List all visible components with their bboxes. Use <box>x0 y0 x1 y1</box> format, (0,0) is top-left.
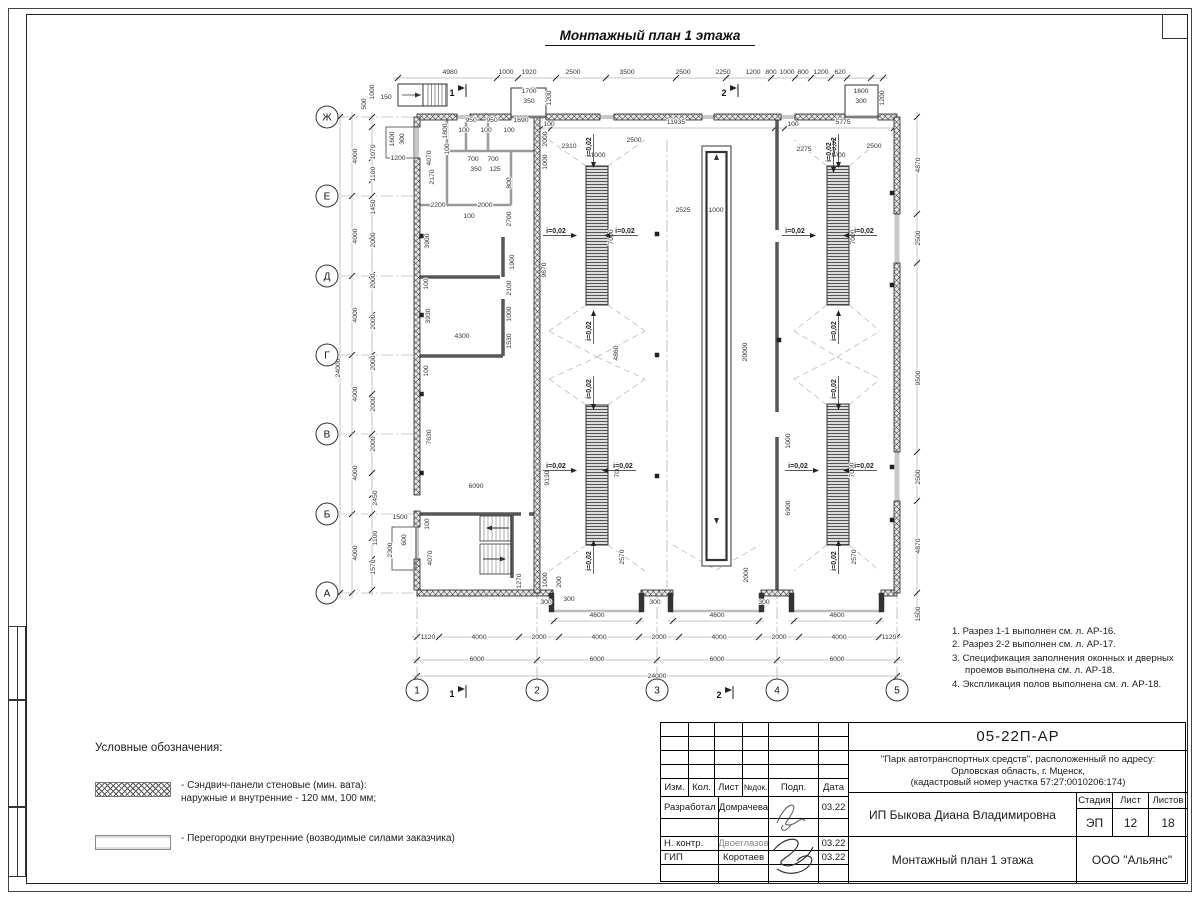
dim-label: 5775 <box>835 119 850 126</box>
date-developer: 03.22 <box>819 797 849 819</box>
col-izm: Изм. <box>661 779 689 797</box>
note-item: 1. Разрез 1-1 выполнен см. л. АР-16. <box>952 626 1194 638</box>
svg-text:i=0,02: i=0,02 <box>854 463 874 470</box>
stage-value: ЭП <box>1077 809 1113 837</box>
axis-bubble: Г <box>316 344 338 366</box>
legend-item: - Перегородки внутренние (возводимые сил… <box>95 833 515 846</box>
axis-bubble: Е <box>316 185 338 207</box>
role-developer: Разработал <box>661 797 719 819</box>
sheets-label: Листов <box>1149 793 1187 809</box>
project-description: "Парк автотранспортных средств", располо… <box>849 751 1187 793</box>
svg-text:i=0,02: i=0,02 <box>586 321 593 341</box>
note-item: 3. Спецификация заполнения оконных и две… <box>952 653 1194 678</box>
drawing-sheet: 4980100019202500350025002250120080010008… <box>0 0 1200 900</box>
svg-text:5: 5 <box>894 686 900 697</box>
doc-number: 05-22П-АР <box>849 723 1187 751</box>
dim-label: 1800 <box>442 123 449 138</box>
slope-label: i=0,02 <box>785 463 819 473</box>
dim-label: 2000 <box>743 567 750 582</box>
section-mark: 1 <box>449 685 466 699</box>
svg-text:1: 1 <box>449 689 454 699</box>
dim-label: 1000 <box>708 207 723 214</box>
client-name: ИП Быкова Диана Владимировна <box>849 793 1077 837</box>
dim-label: 1900 <box>509 254 516 269</box>
dim-label: 100 <box>444 143 451 155</box>
dim-label: 2000 <box>370 273 377 288</box>
dim-label: 125 <box>489 166 501 173</box>
dim-label: 100 <box>543 121 555 128</box>
dim-label: 300 <box>399 133 406 145</box>
dim-label: 1120 <box>421 634 436 641</box>
dim-label: 4300 <box>454 333 469 340</box>
dim-label: 3900 <box>424 233 431 248</box>
dim-label: 2170 <box>429 169 436 184</box>
name-gip: Коротаев <box>719 851 769 865</box>
dim-label: 100 <box>423 278 430 290</box>
svg-text:i=0,02: i=0,02 <box>546 228 566 235</box>
dim-label: 6090 <box>468 483 483 490</box>
slope-label: i=0,02 <box>782 228 816 238</box>
legend-item-text: - Сэндвич-панели стеновые (мин. вата): н… <box>181 780 515 805</box>
dim-label: 6000 <box>829 656 844 663</box>
dim-label: 1120 <box>882 634 897 641</box>
legend-item-text: - Перегородки внутренние (возводимые сил… <box>181 833 515 846</box>
dim-label: 950 <box>486 117 498 124</box>
dim-label: 1000 <box>369 84 376 99</box>
title-block: 05-22П-АР "Парк автотранспортных средств… <box>660 722 1186 882</box>
dim-label: 100 <box>503 127 515 134</box>
dim-label: 600 <box>401 534 408 546</box>
dim-label: 2000 <box>477 202 492 209</box>
dim-label: 700 <box>487 156 499 163</box>
dim-label: 4600 <box>709 612 724 619</box>
dim-label: 300 <box>540 599 552 606</box>
dim-label: 2000 <box>651 634 666 641</box>
sandwich-panel-swatch <box>95 782 171 797</box>
note-item: 4. Экспликация полов выполнена см. л. АР… <box>952 679 1194 691</box>
dim-label: 1200 <box>879 90 886 105</box>
svg-text:Ж: Ж <box>322 113 332 124</box>
col-podp: Подп. <box>769 779 819 797</box>
partition-swatch <box>95 835 171 850</box>
dim-label: 1500 <box>915 606 922 621</box>
dim-label: 100 <box>424 518 431 530</box>
dim-label: 3930 <box>425 308 432 323</box>
dim-label: 4000 <box>591 634 606 641</box>
dim-label: 6900 <box>785 500 792 515</box>
svg-text:i=0,02: i=0,02 <box>586 379 593 399</box>
dim-label: 1000 <box>542 572 549 587</box>
col-list: Лист <box>715 779 743 797</box>
svg-text:Б: Б <box>324 510 331 521</box>
axis-bubble: В <box>316 423 338 445</box>
col-ndok: №док. <box>743 779 769 797</box>
svg-text:1: 1 <box>449 88 454 98</box>
svg-text:Д: Д <box>324 272 331 283</box>
svg-text:1: 1 <box>414 686 420 697</box>
dim-label: 4870 <box>915 157 922 172</box>
svg-text:i=0,02: i=0,02 <box>826 142 833 162</box>
dim-label: 1200 <box>813 69 828 76</box>
dim-label: 2700 <box>506 211 513 226</box>
axis-bubble: 3 <box>646 679 668 701</box>
date-gip: 03.22 <box>819 851 849 865</box>
note-item: 2. Разрез 2-2 выполнен см. л. АР-17. <box>952 639 1194 651</box>
dim-label: 4600 <box>589 612 604 619</box>
dim-label: 950 <box>465 117 477 124</box>
dim-label: 4070 <box>427 550 434 565</box>
slope-label: i=0,02 <box>586 134 596 168</box>
sheet-label: Лист <box>1113 793 1149 809</box>
dim-label: 6000 <box>469 656 484 663</box>
dim-label: 2570 <box>619 549 626 564</box>
dim-label: 1000 <box>542 154 549 169</box>
dim-label: 100 <box>423 365 430 377</box>
dim-label: 300 <box>563 596 575 603</box>
axis-bubble: А <box>316 582 338 604</box>
dim-label: 2450 <box>372 490 379 505</box>
svg-text:i=0,02: i=0,02 <box>615 228 635 235</box>
dim-label: 4000 <box>352 545 359 560</box>
dim-label: 4070 <box>426 150 433 165</box>
date-ncontrol: 03.22 <box>819 837 849 851</box>
dim-label: 1200 <box>390 155 405 162</box>
dim-label: 1600 <box>389 131 396 146</box>
slope-label: i=0,02 <box>543 228 577 238</box>
svg-text:А: А <box>324 589 331 600</box>
svg-text:i=0,02: i=0,02 <box>613 463 633 470</box>
axis-bubble: Б <box>316 503 338 525</box>
dim-label: 4000 <box>352 228 359 243</box>
dim-label: 1270 <box>516 573 523 588</box>
dim-label: 1600 <box>853 88 868 95</box>
dim-label: 9130 <box>544 470 551 485</box>
role-gip: ГИП <box>661 851 719 865</box>
svg-text:В: В <box>324 430 331 441</box>
svg-text:2: 2 <box>721 88 726 98</box>
section-mark: 2 <box>716 686 733 700</box>
sheets-total: 18 <box>1149 809 1187 837</box>
svg-text:Г: Г <box>324 351 330 362</box>
dim-label: 800 <box>506 177 513 189</box>
dim-label: 1000 <box>785 433 792 448</box>
dim-label: 2250 <box>715 69 730 76</box>
dim-label: 6000 <box>709 656 724 663</box>
col-kol: Кол. <box>689 779 715 797</box>
stage-label: Стадия <box>1077 793 1113 809</box>
dim-label: 11935 <box>667 119 686 126</box>
dim-label: 2000 <box>370 355 377 370</box>
drawing-title: Монтажный план 1 этажа <box>849 837 1077 883</box>
dim-label: 4980 <box>442 69 457 76</box>
dim-label: 4000 <box>831 634 846 641</box>
name-developer: Домрачева <box>719 797 769 819</box>
name-ncontrol: Двоеглазов <box>719 837 769 851</box>
section-mark: 1 <box>449 84 466 98</box>
dim-label: 4000 <box>352 307 359 322</box>
slope-label: i=0,02 <box>586 310 596 344</box>
svg-text:i=0,02: i=0,02 <box>788 463 808 470</box>
dim-label: 1530 <box>506 333 513 348</box>
dim-label: 1100 <box>372 530 379 545</box>
legend-heading: Условные обозначения: <box>95 742 515 754</box>
dim-label: 1690 <box>513 117 528 124</box>
col-data: Дата <box>819 779 849 797</box>
axis-bubble: Ж <box>316 106 338 128</box>
dim-label: 1700 <box>521 88 536 95</box>
dim-label: 1450 <box>370 199 377 214</box>
svg-text:i=0,02: i=0,02 <box>546 463 566 470</box>
dim-label: 100 <box>787 121 799 128</box>
dim-label: 2100 <box>506 280 513 295</box>
dim-label: 6000 <box>589 656 604 663</box>
dim-label: 1100 <box>370 166 377 181</box>
svg-text:i=0,02: i=0,02 <box>831 379 838 399</box>
dim-label: 800 <box>765 69 777 76</box>
notes-list: 1. Разрез 1-1 выполнен см. л. АР-16.2. Р… <box>952 626 1194 692</box>
dim-label: 2000 <box>370 314 377 329</box>
dim-label: 2500 <box>675 69 690 76</box>
sheet-number: 12 <box>1113 809 1149 837</box>
dim-label: 4000 <box>352 465 359 480</box>
axis-bubble: 5 <box>886 679 908 701</box>
dim-label: 4000 <box>711 634 726 641</box>
dim-label: 100 <box>463 213 475 220</box>
svg-text:2: 2 <box>534 686 540 697</box>
dim-label: 100 <box>480 127 492 134</box>
dim-label: 1200 <box>546 90 553 105</box>
dim-label: 300 <box>649 599 661 606</box>
dim-label: 1920 <box>521 69 536 76</box>
dim-label: 2275 <box>796 146 811 153</box>
dim-label: 2000 <box>542 131 549 146</box>
dim-label: 20000 <box>742 342 749 361</box>
dim-label: 7630 <box>426 429 433 444</box>
legend-item: - Сэндвич-панели стеновые (мин. вата): н… <box>95 780 515 805</box>
dim-label: 2500 <box>565 69 580 76</box>
dim-label: 2300 <box>387 542 394 557</box>
svg-text:2: 2 <box>716 690 721 700</box>
dim-label: 2000 <box>370 396 377 411</box>
company-name: ООО "Альянс" <box>1077 837 1187 883</box>
dim-label: 4000 <box>471 634 486 641</box>
dim-label: 100 <box>458 127 470 134</box>
svg-text:i=0,02: i=0,02 <box>785 228 805 235</box>
dim-label: 300 <box>855 98 867 105</box>
dim-label: 1070 <box>370 144 377 159</box>
svg-text:i=0,02: i=0,02 <box>586 551 593 571</box>
dim-label: 800 <box>797 69 809 76</box>
dim-label: 2200 <box>430 202 445 209</box>
svg-text:Е: Е <box>324 192 331 203</box>
plan-title: Монтажный план 1 этажа <box>545 28 755 46</box>
dim-label: 620 <box>834 69 846 76</box>
dim-label: 9500 <box>915 370 922 385</box>
dim-label: 2525 <box>675 207 690 214</box>
dim-label: 3500 <box>619 69 634 76</box>
sig-cell <box>769 797 819 819</box>
dim-label: 2000 <box>370 232 377 247</box>
dim-label: 2500 <box>915 469 922 484</box>
slope-label: i=0,02 <box>831 310 841 344</box>
dim-label: 200 <box>556 576 563 588</box>
dim-label: 150 <box>380 94 392 101</box>
dim-label: 4000 <box>352 386 359 401</box>
dim-label: 9670 <box>541 262 548 277</box>
dim-label: 350 <box>523 98 535 105</box>
dim-label: 350 <box>470 166 482 173</box>
dim-label: 2500 <box>866 143 881 150</box>
dim-label: 4000 <box>352 148 359 163</box>
svg-text:i=0,02: i=0,02 <box>831 551 838 571</box>
axis-bubble: Д <box>316 265 338 287</box>
svg-text:4: 4 <box>774 686 780 697</box>
dim-label: 1000 <box>506 306 513 321</box>
svg-text:i=0,02: i=0,02 <box>586 137 593 157</box>
section-mark: 2 <box>721 84 738 98</box>
dim-label: 1000 <box>498 69 513 76</box>
svg-text:3: 3 <box>654 686 660 697</box>
dim-label: 500 <box>361 98 368 110</box>
dim-label: 4870 <box>915 538 922 553</box>
dim-label: 1200 <box>745 69 760 76</box>
dim-label: 2310 <box>561 143 576 150</box>
dim-label: 2570 <box>851 549 858 564</box>
dim-label: 300 <box>758 599 770 606</box>
dim-label: 2000 <box>531 634 546 641</box>
dim-label: 2500 <box>915 230 922 245</box>
axis-bubble: 4 <box>766 679 788 701</box>
dim-label: 700 <box>467 156 479 163</box>
dim-label: 1000 <box>779 69 794 76</box>
dim-label: 4860 <box>613 345 620 360</box>
dim-label: 2000 <box>771 634 786 641</box>
dim-label: 1570 <box>370 559 377 574</box>
dim-label: 4600 <box>829 612 844 619</box>
svg-text:i=0,02: i=0,02 <box>831 321 838 341</box>
dim-label: 2000 <box>370 436 377 451</box>
legend: Условные обозначения: - Сэндвич-панели с… <box>95 742 515 874</box>
axis-bubble: 1 <box>406 679 428 701</box>
axis-bubble: 2 <box>526 679 548 701</box>
dim-label: 2500 <box>626 137 641 144</box>
svg-text:i=0,02: i=0,02 <box>854 228 874 235</box>
role-ncontrol: Н. контр. <box>661 837 719 851</box>
dim-label: 1500 <box>392 514 407 521</box>
